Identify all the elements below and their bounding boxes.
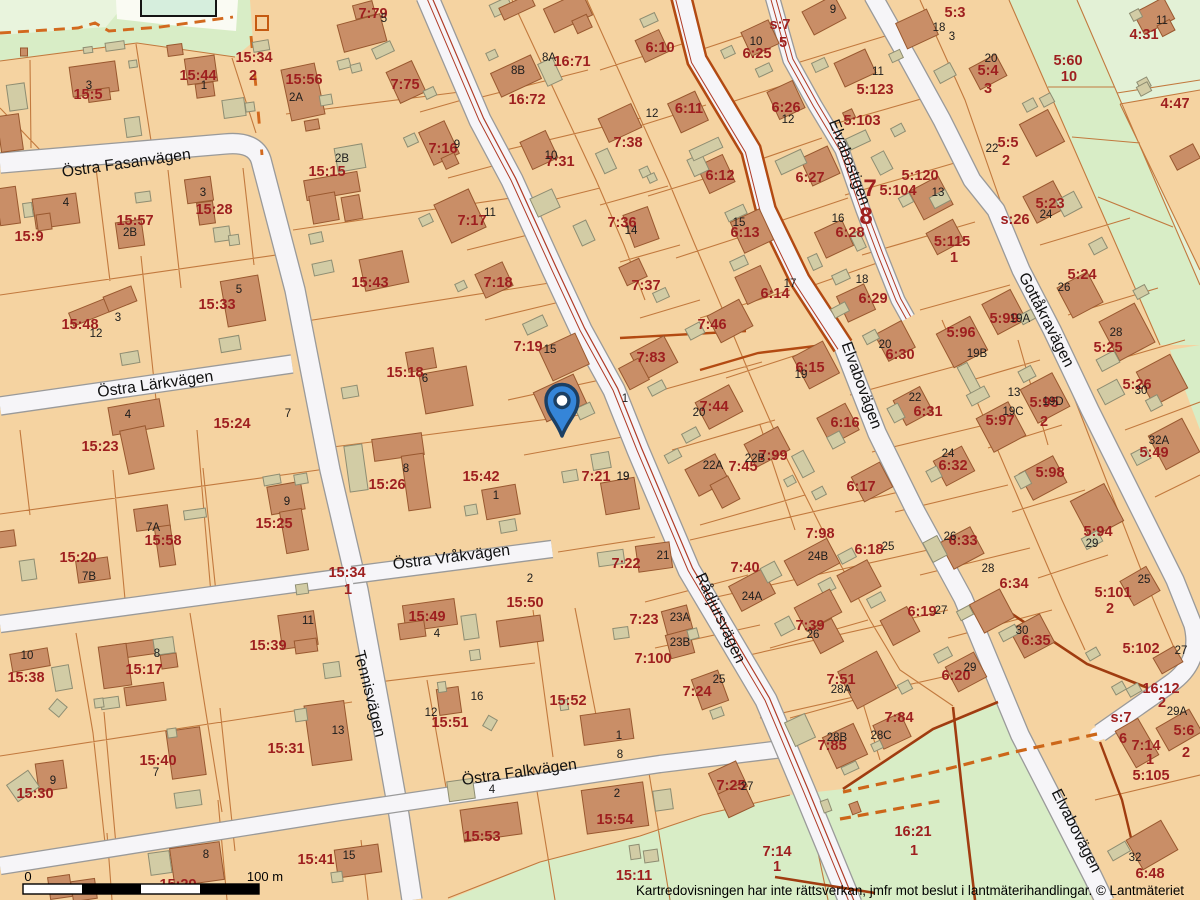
svg-text:5:4: 5:4: [978, 63, 999, 79]
svg-text:6:34: 6:34: [999, 576, 1028, 592]
svg-text:5: 5: [236, 284, 242, 296]
svg-text:7:14: 7:14: [762, 844, 791, 860]
svg-text:15:23: 15:23: [81, 439, 118, 455]
svg-text:22: 22: [986, 143, 999, 155]
svg-text:15:20: 15:20: [59, 550, 96, 566]
svg-text:16: 16: [832, 213, 845, 225]
svg-text:19A: 19A: [1010, 313, 1031, 325]
svg-text:19B: 19B: [967, 348, 988, 360]
svg-text:7: 7: [153, 767, 159, 779]
svg-text:10: 10: [1061, 69, 1077, 85]
svg-text:5:104: 5:104: [879, 183, 916, 199]
svg-text:12: 12: [425, 707, 438, 719]
svg-text:2: 2: [614, 788, 620, 800]
svg-text:7:24: 7:24: [682, 684, 711, 700]
svg-text:14: 14: [625, 225, 638, 237]
svg-text:30: 30: [1135, 385, 1148, 397]
svg-text:29: 29: [964, 662, 977, 674]
svg-text:2B: 2B: [335, 153, 349, 165]
svg-text:5:96: 5:96: [946, 325, 975, 341]
svg-text:1: 1: [910, 843, 918, 859]
svg-text:15:25: 15:25: [255, 516, 292, 532]
svg-text:100 m: 100 m: [247, 869, 283, 884]
svg-text:7:40: 7:40: [730, 560, 759, 576]
svg-text:16:71: 16:71: [553, 54, 590, 70]
svg-text:15:42: 15:42: [462, 469, 499, 485]
svg-text:15:34: 15:34: [328, 565, 365, 581]
svg-text:25: 25: [1138, 574, 1151, 586]
svg-text:1: 1: [950, 250, 958, 266]
svg-text:15:53: 15:53: [463, 829, 500, 845]
svg-text:15:17: 15:17: [125, 662, 162, 678]
svg-text:12: 12: [782, 114, 795, 126]
svg-text:15:58: 15:58: [144, 533, 181, 549]
svg-text:15:34: 15:34: [235, 50, 272, 66]
svg-text:1: 1: [616, 730, 622, 742]
svg-text:8B: 8B: [511, 65, 525, 77]
svg-text:2B: 2B: [123, 227, 137, 239]
svg-text:9: 9: [454, 139, 460, 151]
svg-text:s:7: s:7: [770, 17, 791, 33]
svg-text:2: 2: [527, 573, 533, 585]
svg-text:27: 27: [741, 781, 754, 793]
svg-text:7:18: 7:18: [483, 275, 512, 291]
svg-text:3: 3: [949, 31, 955, 43]
svg-text:11: 11: [872, 66, 884, 78]
svg-text:15:52: 15:52: [549, 693, 586, 709]
svg-text:5:5: 5:5: [998, 135, 1019, 151]
svg-text:2: 2: [1106, 601, 1114, 617]
svg-text:11: 11: [484, 207, 496, 219]
svg-text:7: 7: [863, 175, 876, 202]
svg-text:15:18: 15:18: [386, 365, 423, 381]
svg-text:15:39: 15:39: [249, 638, 286, 654]
svg-text:22: 22: [909, 392, 922, 404]
svg-text:5:6: 5:6: [1174, 723, 1195, 739]
svg-text:6: 6: [422, 373, 428, 385]
svg-text:2A: 2A: [289, 92, 303, 104]
svg-text:7:23: 7:23: [629, 612, 658, 628]
svg-text:15:31: 15:31: [267, 741, 304, 757]
svg-text:15:38: 15:38: [7, 670, 44, 686]
svg-text:23A: 23A: [670, 612, 691, 624]
svg-text:15:49: 15:49: [408, 609, 445, 625]
svg-text:5:25: 5:25: [1093, 340, 1122, 356]
svg-text:6:19: 6:19: [907, 604, 936, 620]
svg-text:s:26: s:26: [1000, 212, 1029, 228]
svg-text:7:22: 7:22: [611, 556, 640, 572]
svg-text:5:101: 5:101: [1094, 585, 1131, 601]
svg-text:26: 26: [807, 629, 820, 641]
svg-text:7:84: 7:84: [884, 710, 913, 726]
svg-text:15:15: 15:15: [308, 164, 345, 180]
svg-text:15:24: 15:24: [213, 416, 250, 432]
svg-text:15:50: 15:50: [506, 595, 543, 611]
svg-text:6:29: 6:29: [858, 291, 887, 307]
svg-text:15:54: 15:54: [596, 812, 633, 828]
svg-text:25: 25: [882, 541, 895, 553]
svg-text:4: 4: [489, 784, 496, 796]
svg-text:18: 18: [933, 22, 946, 34]
svg-text:8: 8: [154, 648, 160, 660]
svg-text:24B: 24B: [808, 551, 829, 563]
svg-text:7A: 7A: [146, 522, 160, 534]
svg-text:4: 4: [63, 197, 70, 209]
svg-text:5:105: 5:105: [1132, 768, 1169, 784]
svg-text:5:60: 5:60: [1053, 53, 1082, 69]
svg-text:7:19: 7:19: [513, 339, 542, 355]
svg-text:5:24: 5:24: [1067, 267, 1096, 283]
svg-text:7:46: 7:46: [697, 317, 726, 333]
svg-text:5: 5: [381, 13, 387, 25]
svg-text:24A: 24A: [742, 591, 763, 603]
svg-text:16:21: 16:21: [894, 824, 931, 840]
svg-text:5:115: 5:115: [934, 234, 970, 250]
svg-text:5:120: 5:120: [901, 168, 938, 184]
svg-text:27: 27: [935, 605, 948, 617]
svg-text:1: 1: [493, 490, 499, 502]
svg-text:19C: 19C: [1002, 406, 1023, 418]
svg-text:26: 26: [944, 531, 957, 543]
svg-text:18: 18: [856, 274, 869, 286]
svg-text:7:75: 7:75: [390, 77, 419, 93]
svg-text:8: 8: [617, 749, 623, 761]
svg-text:2: 2: [1040, 414, 1048, 430]
svg-text:13: 13: [932, 187, 945, 199]
svg-text:8: 8: [403, 463, 409, 475]
svg-text:7: 7: [285, 408, 291, 420]
svg-text:1: 1: [1146, 752, 1154, 768]
svg-text:7:38: 7:38: [613, 135, 642, 151]
svg-text:8: 8: [859, 203, 872, 230]
svg-text:6:31: 6:31: [913, 404, 942, 420]
svg-text:28A: 28A: [831, 684, 852, 696]
svg-text:29A: 29A: [1167, 706, 1188, 718]
svg-text:24: 24: [1040, 209, 1053, 221]
svg-text:9: 9: [50, 775, 56, 787]
svg-text:3: 3: [86, 80, 92, 92]
svg-text:15:30: 15:30: [16, 786, 53, 802]
svg-text:12: 12: [646, 108, 659, 120]
svg-text:5:102: 5:102: [1122, 641, 1159, 657]
svg-text:9: 9: [830, 4, 836, 16]
svg-text:15: 15: [733, 217, 746, 229]
svg-text:13: 13: [332, 725, 345, 737]
svg-text:2: 2: [1002, 153, 1010, 169]
svg-text:16: 16: [471, 691, 484, 703]
svg-text:24: 24: [942, 448, 955, 460]
svg-text:19: 19: [617, 471, 630, 483]
svg-text:15:56: 15:56: [285, 72, 322, 88]
svg-text:13: 13: [1008, 387, 1021, 399]
svg-text:5: 5: [779, 35, 787, 51]
svg-text:15: 15: [343, 850, 356, 862]
svg-text:10: 10: [21, 650, 34, 662]
svg-text:7:83: 7:83: [636, 350, 665, 366]
svg-text:7:21: 7:21: [581, 469, 610, 485]
svg-text:5:49: 5:49: [1139, 445, 1168, 461]
svg-text:22B: 22B: [745, 453, 766, 465]
svg-text:2: 2: [249, 68, 257, 84]
svg-text:15:11: 15:11: [616, 868, 652, 884]
svg-text:3: 3: [200, 187, 206, 199]
svg-text:22A: 22A: [703, 460, 724, 472]
svg-text:32: 32: [1129, 852, 1142, 864]
svg-text:5:103: 5:103: [843, 113, 880, 129]
svg-text:15:28: 15:28: [195, 202, 232, 218]
svg-text:9: 9: [284, 496, 290, 508]
svg-text:3: 3: [984, 81, 992, 97]
svg-text:5:98: 5:98: [1035, 465, 1064, 481]
svg-text:6:25: 6:25: [742, 46, 771, 62]
svg-text:1: 1: [344, 582, 352, 598]
svg-text:6:27: 6:27: [795, 170, 824, 186]
svg-text:29: 29: [1086, 538, 1099, 550]
svg-text:6:18: 6:18: [854, 542, 883, 558]
svg-text:15:33: 15:33: [198, 297, 235, 313]
svg-text:28C: 28C: [870, 730, 891, 742]
svg-text:6:32: 6:32: [938, 458, 967, 474]
svg-text:19D: 19D: [1042, 396, 1063, 408]
svg-text:21: 21: [657, 550, 670, 562]
svg-text:23B: 23B: [670, 637, 691, 649]
svg-text:7:98: 7:98: [805, 526, 834, 542]
svg-text:11: 11: [1156, 15, 1168, 27]
svg-text:7:17: 7:17: [457, 213, 486, 229]
svg-text:20: 20: [879, 339, 892, 351]
svg-text:20: 20: [985, 53, 998, 65]
svg-text:12: 12: [90, 328, 103, 340]
svg-text:1: 1: [622, 393, 628, 405]
svg-text:19: 19: [795, 369, 808, 381]
svg-text:6:48: 6:48: [1135, 866, 1164, 882]
svg-text:8A: 8A: [542, 52, 556, 64]
svg-text:20: 20: [693, 407, 706, 419]
svg-text:4:31: 4:31: [1129, 27, 1158, 43]
svg-text:25: 25: [713, 674, 726, 686]
svg-text:4: 4: [125, 409, 132, 421]
svg-text:2: 2: [1158, 695, 1166, 711]
svg-text:6:12: 6:12: [705, 168, 734, 184]
svg-text:5:3: 5:3: [945, 5, 966, 21]
svg-text:17: 17: [784, 278, 797, 290]
svg-text:16:72: 16:72: [508, 92, 545, 108]
svg-text:15:9: 15:9: [14, 229, 43, 245]
svg-text:s:7: s:7: [1111, 710, 1132, 726]
svg-text:8: 8: [203, 849, 209, 861]
svg-text:15:41: 15:41: [297, 852, 334, 868]
svg-text:1: 1: [773, 859, 781, 875]
svg-text:7:37: 7:37: [631, 278, 660, 294]
svg-text:7:100: 7:100: [634, 651, 671, 667]
svg-text:4: 4: [434, 628, 441, 640]
svg-text:15:43: 15:43: [351, 275, 388, 291]
svg-text:0: 0: [24, 869, 31, 884]
svg-text:15: 15: [544, 344, 557, 356]
svg-text:6:10: 6:10: [645, 40, 674, 56]
svg-text:2: 2: [1182, 745, 1190, 761]
svg-text:30: 30: [1016, 625, 1029, 637]
svg-text:1: 1: [201, 80, 207, 92]
svg-text:15:26: 15:26: [368, 477, 405, 493]
svg-text:Kartredovisningen har inte rät: Kartredovisningen har inte rättsverkan, …: [636, 883, 1184, 898]
svg-text:6: 6: [1119, 731, 1127, 747]
svg-text:6:16: 6:16: [830, 415, 859, 431]
svg-text:28: 28: [1110, 327, 1123, 339]
svg-text:4:47: 4:47: [1160, 96, 1189, 112]
svg-text:27: 27: [1175, 645, 1188, 657]
svg-text:10: 10: [750, 36, 763, 48]
svg-text:26: 26: [1058, 282, 1071, 294]
svg-text:10: 10: [545, 150, 558, 162]
svg-text:15:44: 15:44: [179, 68, 216, 84]
svg-text:6:11: 6:11: [675, 101, 703, 117]
svg-text:28: 28: [982, 563, 995, 575]
svg-text:11: 11: [302, 615, 314, 627]
svg-text:28B: 28B: [827, 732, 848, 744]
svg-text:6:17: 6:17: [846, 479, 875, 495]
svg-text:5:123: 5:123: [856, 82, 893, 98]
svg-text:3: 3: [115, 312, 121, 324]
svg-text:32A: 32A: [1149, 435, 1170, 447]
svg-text:7B: 7B: [82, 571, 96, 583]
